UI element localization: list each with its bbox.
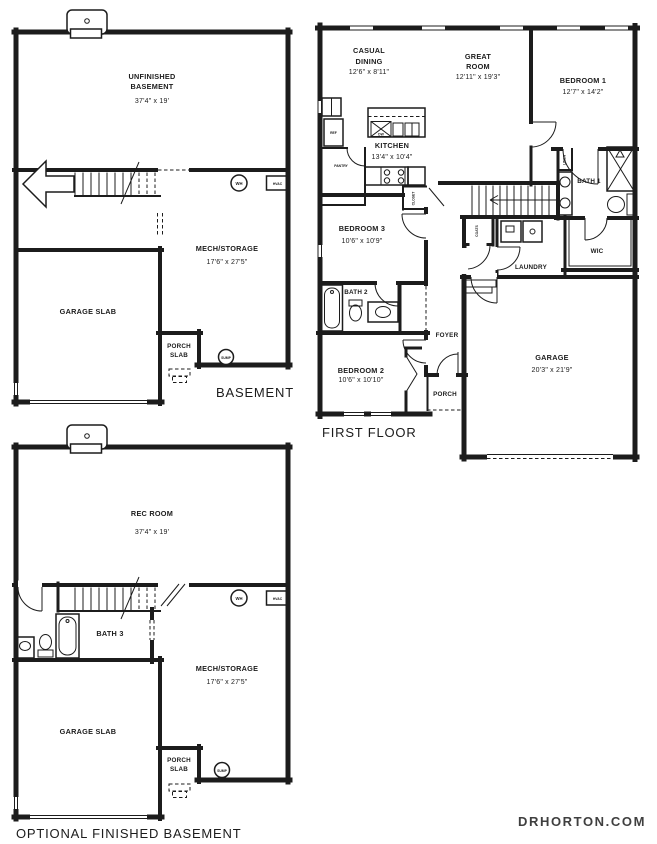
ref-label: REF — [330, 131, 337, 135]
mech-storage-label: MECH/STORAGE — [196, 244, 258, 253]
svg-text:17'6" x 27'5": 17'6" x 27'5" — [207, 679, 248, 686]
first-floor-title: FIRST FLOOR — [322, 425, 417, 440]
hvac-label: HVAC — [273, 597, 283, 601]
bedroom3-label: BEDROOM 3 — [339, 224, 385, 233]
sink-counter — [368, 302, 398, 322]
svg-text:SLAB: SLAB — [170, 766, 188, 773]
sump-label: SUMP — [221, 356, 232, 360]
optional-basement-title: OPTIONAL FINISHED BASEMENT — [16, 826, 241, 841]
basement-labels: UNFINISHED BASEMENT 37'4" x 19' MECH/STO… — [60, 72, 294, 400]
svg-text:10'6" x 10'10": 10'6" x 10'10" — [338, 377, 383, 384]
sump-label: SUMP — [217, 769, 228, 773]
svg-text:12'7" x 14'2": 12'7" x 14'2" — [563, 89, 604, 96]
bedroom2-label: BEDROOM 2 — [338, 366, 384, 375]
opt-basement-labels: REC ROOM 37'4" x 19' BATH 3 MECH/STORAGE… — [16, 509, 258, 841]
hvac-label: HVAC — [273, 182, 283, 186]
bath3-fixtures — [16, 614, 79, 658]
water-heater-label: WH — [236, 596, 243, 601]
stair-direction-arrow — [23, 161, 74, 207]
casual-dining-label: CASUAL — [353, 46, 385, 55]
svg-text:ROOM: ROOM — [466, 62, 490, 71]
great-room-label: GREAT — [465, 52, 492, 61]
opt-basement-chimney — [67, 425, 107, 453]
floorplan-sheet: WH HVAC SUMP UNFINISHED BASEMENT 37'4" x… — [0, 0, 657, 844]
bath3-label: BATH 3 — [96, 629, 123, 638]
sink-counter — [16, 637, 34, 658]
garage-steps — [466, 280, 496, 287]
garage-slab-label: GARAGE SLAB — [60, 727, 117, 736]
svg-text:BASEMENT: BASEMENT — [131, 82, 174, 91]
basement-openings — [13, 166, 190, 407]
svg-text:10'6" x 10'9": 10'6" x 10'9" — [342, 238, 383, 245]
svg-text:37'4" x 19': 37'4" x 19' — [135, 529, 169, 536]
first-floor-doors — [347, 122, 607, 392]
opt-basement-openings — [13, 581, 190, 822]
svg-text:DINING: DINING — [355, 57, 382, 66]
svg-text:SLAB: SLAB — [170, 352, 188, 359]
svg-text:13'4" x 10'4": 13'4" x 10'4" — [372, 154, 413, 161]
website-text: DRHORTON.COM — [518, 814, 646, 829]
coats-label: COATS — [475, 224, 479, 236]
rec-room-label: REC ROOM — [131, 509, 173, 518]
unfinished-basement-dims: 37'4" x 19' — [135, 98, 169, 105]
basement-stairs — [23, 161, 160, 207]
basement-chimney — [67, 10, 107, 38]
bifold-closet-door — [406, 356, 417, 392]
basement-plan: WH HVAC SUMP UNFINISHED BASEMENT 37'4" x… — [13, 10, 294, 407]
closet-label: CLOSET — [412, 191, 416, 206]
laundry-label: LAUNDRY — [515, 264, 548, 271]
water-heater-label: WH — [236, 181, 243, 186]
wic-label: WIC — [591, 248, 604, 255]
bedroom1-label: BEDROOM 1 — [560, 76, 606, 85]
porch-slab-label: PORCH — [167, 757, 191, 764]
mech-storage-dims: 17'6" x 27'5" — [207, 259, 248, 266]
toilet-icon — [38, 650, 53, 657]
unfinished-basement-label: UNFINISHED — [128, 72, 175, 81]
bath1-label: BATH 1 — [577, 178, 601, 185]
kitchen-fixtures: REF PANTRY DW — [320, 98, 425, 205]
basement-title: BASEMENT — [216, 385, 294, 400]
svg-text:12'11" x 19'3": 12'11" x 19'3" — [456, 74, 501, 81]
dw-label: DW — [378, 133, 384, 137]
mech-storage-label: MECH/STORAGE — [196, 664, 258, 673]
first-floor-stairs — [472, 186, 556, 216]
pantry-label: PANTRY — [334, 164, 348, 168]
wic-shelf-line — [569, 220, 631, 266]
linen-label: LINEN — [563, 154, 567, 165]
kitchen-label: KITCHEN — [375, 141, 409, 150]
garage-fixtures — [427, 280, 613, 462]
garage-slab-label: GARAGE SLAB — [60, 307, 117, 316]
svg-text:12'6" x 8'11": 12'6" x 8'11" — [349, 69, 390, 76]
garage-label: GARAGE — [535, 353, 569, 362]
porch-slab-label: PORCH — [167, 343, 191, 350]
dryer-icon — [523, 221, 542, 242]
foyer-label: FOYER — [436, 332, 459, 339]
vanity-icon — [558, 172, 572, 215]
first-floor-plan: REF PANTRY DW — [317, 24, 638, 462]
bath2-label: BATH 2 — [344, 289, 368, 296]
optional-basement-plan: WH HVAC SUMP REC ROOM 37'4" x 19' BATH 3… — [13, 425, 291, 841]
floorplan-drawing: WH HVAC SUMP UNFINISHED BASEMENT 37'4" x… — [0, 0, 657, 844]
porch-label: PORCH — [433, 391, 457, 398]
svg-text:20'3" x 21'9": 20'3" x 21'9" — [532, 367, 573, 374]
